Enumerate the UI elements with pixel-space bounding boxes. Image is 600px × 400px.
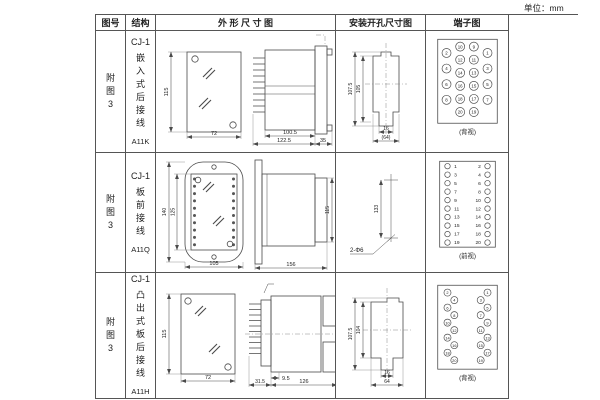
cell-row2-outline: 140 125 105 (156, 153, 336, 273)
svg-text:20: 20 (457, 109, 462, 114)
dim-label: 16 (384, 370, 390, 376)
dim-label: 16 (383, 126, 389, 132)
unit-label: 单位：mm (524, 2, 564, 14)
structure-text: CJ-1凸出式板后接线A11H (126, 273, 155, 398)
hatch-mark (203, 68, 215, 79)
cell-row1-install: 107.5 105 16 (64) (336, 31, 426, 153)
header-row: 图号 结构 外 形 尺 寸 图 安装开孔尺寸图 端子图 (96, 15, 509, 31)
svg-text:6: 6 (446, 305, 448, 310)
svg-text:16: 16 (452, 342, 456, 347)
header-outline: 外 形 尺 寸 图 (156, 15, 336, 31)
structure-text: CJ-1嵌入式后接线A11K (126, 36, 155, 148)
svg-text:5: 5 (454, 180, 457, 186)
row1-side-view: 100.5 122.5 35 (253, 35, 332, 146)
terminal-column: 135791113151719 (444, 163, 459, 246)
svg-text:19: 19 (454, 240, 460, 246)
svg-text:16: 16 (457, 83, 462, 88)
svg-text:20: 20 (475, 240, 481, 246)
svg-text:11: 11 (471, 57, 476, 62)
svg-text:15: 15 (478, 342, 482, 347)
svg-text:7: 7 (479, 312, 481, 317)
svg-text:18: 18 (445, 350, 449, 355)
svg-text:10: 10 (457, 44, 462, 49)
svg-text:13: 13 (471, 70, 476, 75)
svg-text:13: 13 (454, 214, 460, 220)
row2-front-view: 140 125 105 (162, 162, 243, 269)
terminal-column: 135791113151719 (477, 289, 491, 364)
svg-text:9: 9 (454, 197, 457, 203)
dim-label: (64) (381, 135, 390, 141)
cell-row1-structure: CJ-1嵌入式后接线A11K (126, 31, 156, 153)
svg-text:19: 19 (478, 357, 482, 362)
svg-text:18: 18 (457, 96, 462, 101)
svg-text:12: 12 (475, 206, 481, 212)
hole-spec-label: 2-Φ6 (350, 248, 364, 254)
terminal-column: 1357 (483, 48, 492, 104)
dim-label: 115 (164, 87, 170, 96)
svg-text:17: 17 (471, 96, 476, 101)
structure-text: CJ-1板前接线A11Q (126, 170, 155, 256)
terminal-column: 91113151719 (469, 42, 478, 116)
cell-row2-install: 133 2-Φ6 (336, 153, 426, 273)
row3-outline-drawing: 115 72 9.5 (157, 276, 335, 396)
row2-outline-drawing: 140 125 105 (157, 154, 335, 272)
fig-no-text: 附图3 (96, 316, 125, 355)
cell-row1-outline: 115 72 (156, 31, 336, 153)
row1-install-drawing: 107.5 105 16 (64) (337, 32, 425, 152)
dim-label: 156 (286, 262, 295, 268)
cell-row3-install: 107.5 104 16 64 (336, 273, 426, 399)
hatch-mark (209, 344, 220, 354)
table-row: 附图3 CJ-1嵌入式后接线A11K 115 (96, 31, 509, 153)
svg-text:17: 17 (454, 231, 460, 237)
manual-page: 单位：mm 图号 结构 外 形 尺 寸 图 安装开孔尺寸图 端子图 附图3 CJ… (0, 0, 600, 400)
hatch-mark (203, 182, 214, 192)
svg-text:8: 8 (453, 312, 455, 317)
dim-label: 72 (210, 131, 216, 137)
row3-install-drawing: 107.5 104 16 64 (337, 276, 425, 396)
dim-label: 126 (299, 379, 308, 385)
cell-row1-fig-no: 附图3 (96, 31, 126, 153)
cell-row3-structure: CJ-1凸出式板后接线A11H (126, 273, 156, 399)
dim-label: 105 (209, 261, 218, 267)
leader-line (264, 284, 274, 293)
row2-install-drawing: 133 2-Φ6 (337, 154, 425, 272)
row2-side-view: 156 115 (255, 160, 334, 270)
terminal-column: 2468 (442, 48, 451, 104)
dim-label: 105 (356, 84, 362, 93)
svg-text:2: 2 (478, 163, 481, 169)
terminal-column: 101214161820 (455, 42, 464, 116)
svg-text:2: 2 (446, 290, 448, 295)
svg-text:3: 3 (479, 297, 481, 302)
dimension-table: 图号 结构 外 形 尺 寸 图 安装开孔尺寸图 端子图 附图3 CJ-1嵌入式后… (95, 14, 509, 399)
cell-row3-terminal: 2468101214161820 135791113151719 (背视) (426, 273, 509, 399)
hatch-mark (199, 98, 211, 109)
dim-label: 64 (384, 379, 390, 385)
header-structure: 结构 (126, 15, 156, 31)
header-install: 安装开孔尺寸图 (336, 15, 426, 31)
svg-text:1: 1 (486, 290, 488, 295)
dim-label: 100.5 (283, 130, 297, 136)
dim-label: 140 (162, 207, 168, 216)
cell-row2-structure: CJ-1板前接线A11Q (126, 153, 156, 273)
row3-front-view: 115 72 (162, 294, 235, 383)
view-caption: (背视) (459, 372, 476, 381)
header-terminal: 端子图 (426, 15, 509, 31)
row1-front-view: 115 72 (164, 52, 241, 139)
dim-label: 122.5 (277, 138, 291, 144)
svg-text:1: 1 (454, 163, 457, 169)
svg-text:15: 15 (454, 223, 460, 229)
terminal-fins (253, 58, 265, 112)
table-row: 附图3 CJ-1板前接线A11Q (96, 153, 509, 273)
svg-text:8: 8 (478, 189, 481, 195)
svg-text:17: 17 (485, 350, 489, 355)
svg-text:15: 15 (471, 83, 476, 88)
view-caption: (背视) (459, 126, 476, 135)
svg-text:12: 12 (452, 327, 456, 332)
cell-row1-terminal: 2468 101214161820 91113151719 1357 (背视) (426, 31, 509, 153)
dim-label: 133 (374, 204, 380, 213)
cell-row3-outline: 115 72 9.5 (156, 273, 336, 399)
table-row: 附图3 CJ-1凸出式板后接线A11H 115 (96, 273, 509, 399)
svg-text:19: 19 (471, 109, 476, 114)
dim-label: 125 (170, 207, 176, 216)
svg-text:6: 6 (478, 180, 481, 186)
dim-label: 107.5 (348, 327, 354, 340)
row2-terminal-drawing: 135791113151719 2468101214161820 (前视) (427, 154, 508, 272)
cell-row2-terminal: 135791113151719 2468101214161820 (前视) (426, 153, 509, 273)
svg-text:4: 4 (478, 172, 481, 178)
hatch-mark (213, 216, 224, 226)
svg-text:13: 13 (485, 335, 489, 340)
svg-text:9: 9 (486, 320, 488, 325)
dim-label: 72 (204, 375, 210, 381)
svg-text:12: 12 (457, 57, 462, 62)
cell-row2-fig-no: 附图3 (96, 153, 126, 273)
svg-text:14: 14 (457, 70, 462, 75)
fig-no-text: 附图3 (96, 193, 125, 232)
header-fig-no: 图号 (96, 15, 126, 31)
fig-no-text: 附图3 (96, 72, 125, 111)
row1-outline-drawing: 115 72 (157, 32, 335, 152)
top-rule-extension (507, 14, 578, 15)
svg-text:7: 7 (454, 189, 457, 195)
dim-label: 115 (325, 205, 331, 213)
terminal-column: 2468101214161820 (443, 289, 457, 364)
hatch-mark (195, 306, 206, 316)
row1-terminal-drawing: 2468 101214161820 91113151719 1357 (背视) (427, 32, 508, 152)
dim-label: 9.5 (282, 376, 290, 382)
row3-side-view: 9.5 31.5 126 (245, 284, 335, 387)
row3-terminal-drawing: 2468101214161820 135791113151719 (背视) (427, 276, 508, 396)
svg-text:18: 18 (475, 231, 481, 237)
cell-row3-fig-no: 附图3 (96, 273, 126, 399)
dim-label: 35 (319, 138, 325, 144)
dim-label: 31.5 (255, 379, 265, 385)
svg-text:11: 11 (454, 206, 459, 212)
svg-text:14: 14 (475, 214, 481, 220)
svg-text:5: 5 (486, 305, 488, 310)
terminal-column: 2468101214161820 (475, 163, 490, 246)
svg-text:16: 16 (475, 223, 481, 229)
view-caption: (前视) (459, 250, 476, 259)
svg-text:3: 3 (454, 172, 457, 178)
svg-text:10: 10 (475, 197, 481, 203)
dim-label: 115 (162, 329, 168, 338)
terminal-fins (249, 304, 261, 354)
dim-label: 107.5 (348, 82, 354, 95)
dim-label: 104 (356, 325, 362, 334)
svg-text:11: 11 (478, 327, 482, 332)
